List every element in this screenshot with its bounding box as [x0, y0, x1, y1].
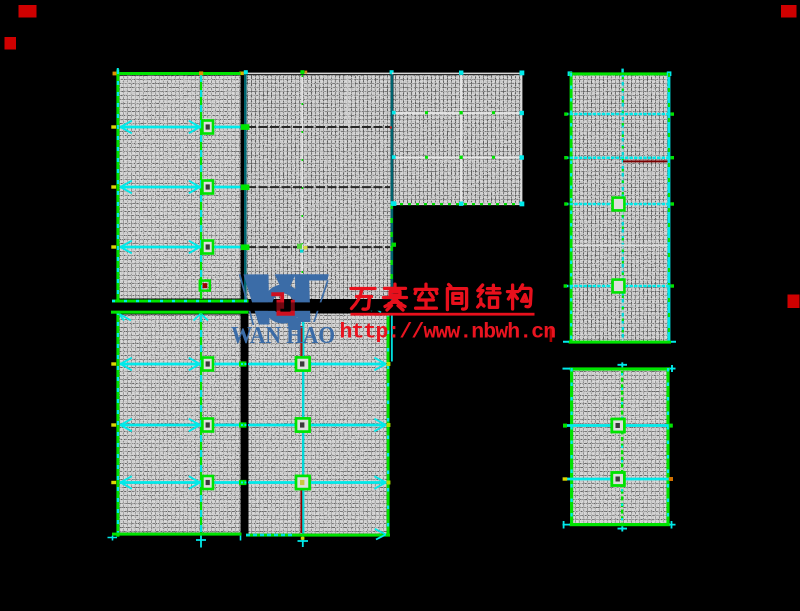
svg-text:WAN HAO: WAN HAO: [231, 323, 335, 349]
svg-text:http://www.nbwh.cn: http://www.nbwh.cn: [340, 321, 556, 345]
